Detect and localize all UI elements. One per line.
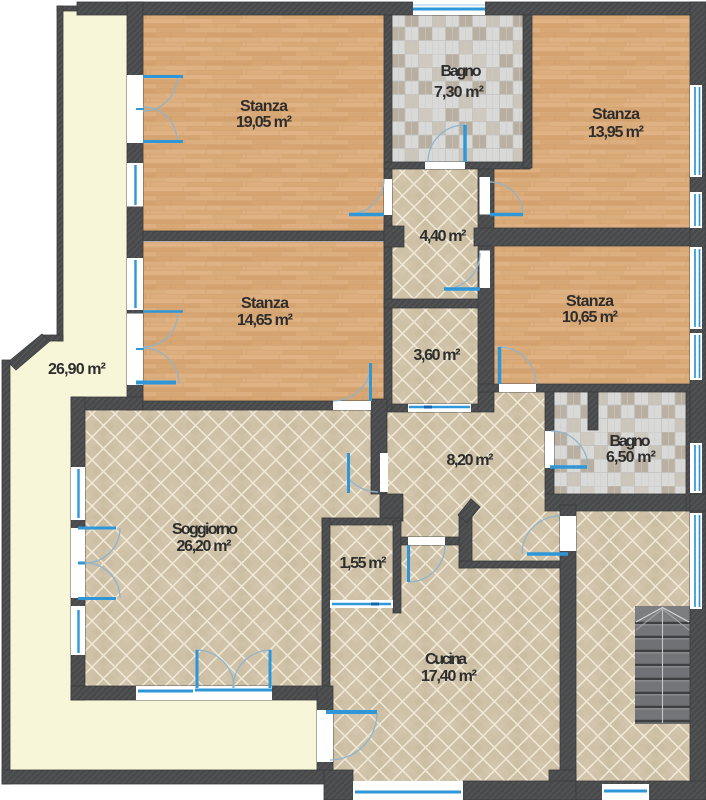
svg-text:Stanza: Stanza — [592, 106, 640, 123]
svg-text:Stanza: Stanza — [566, 293, 614, 310]
svg-text:14,65 m²: 14,65 m² — [237, 312, 293, 329]
svg-text:10,65 m²: 10,65 m² — [562, 309, 618, 326]
svg-text:Bagno: Bagno — [610, 433, 651, 450]
svg-text:Stanza: Stanza — [241, 295, 289, 312]
svg-text:26,20 m²: 26,20 m² — [177, 538, 232, 555]
svg-text:13,95 m²: 13,95 m² — [588, 124, 644, 141]
svg-text:Bagno: Bagno — [441, 63, 482, 80]
svg-text:Stanza: Stanza — [240, 98, 288, 115]
svg-text:17,40 m²: 17,40 m² — [421, 668, 477, 685]
svg-text:3,60 m²: 3,60 m² — [414, 347, 461, 364]
svg-text:Soggiorno: Soggiorno — [172, 521, 238, 538]
svg-text:19,05 m²: 19,05 m² — [236, 114, 292, 131]
svg-text:4,40 m²: 4,40 m² — [420, 228, 467, 245]
svg-text:26,90 m²: 26,90 m² — [48, 361, 106, 378]
svg-text:6,50 m²: 6,50 m² — [606, 449, 656, 466]
svg-text:8,20 m²: 8,20 m² — [447, 452, 494, 469]
svg-text:1,55 m²: 1,55 m² — [340, 555, 387, 572]
svg-text:Cucina: Cucina — [425, 651, 467, 668]
svg-text:7,30 m²: 7,30 m² — [434, 84, 484, 101]
